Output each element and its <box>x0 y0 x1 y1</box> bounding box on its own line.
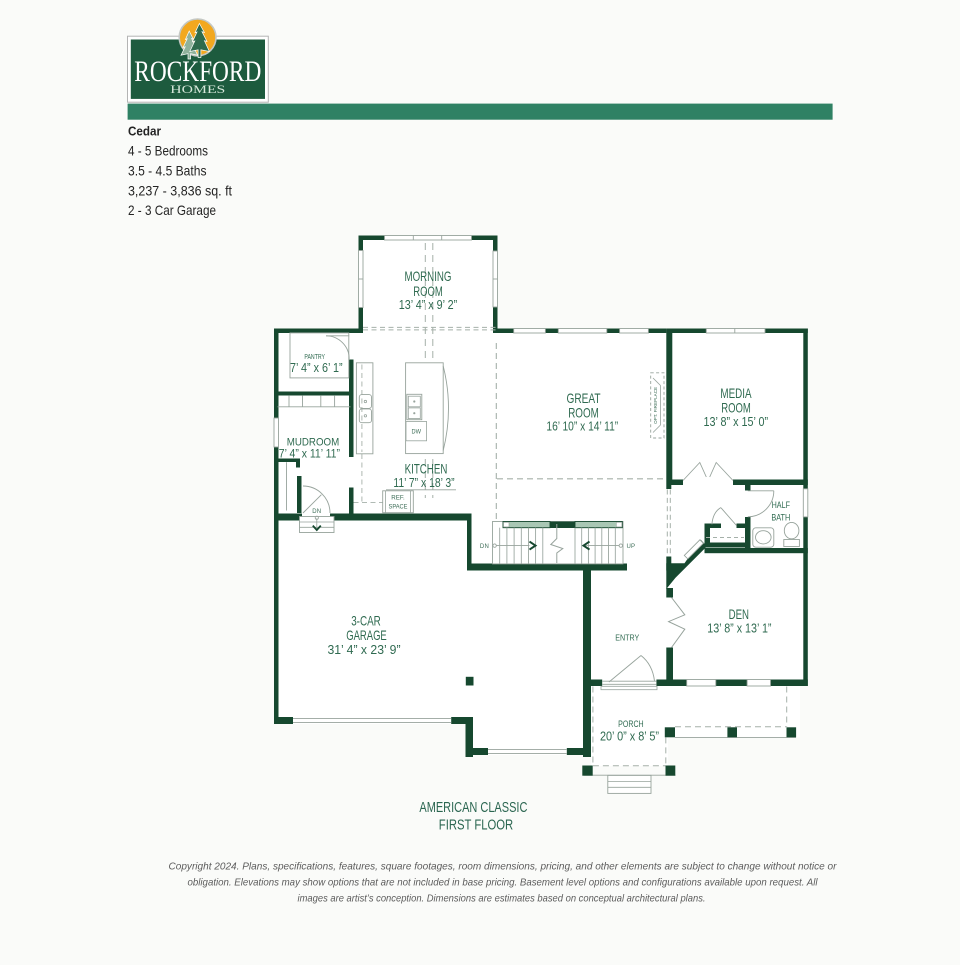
svg-text:GARAGE: GARAGE <box>346 628 387 643</box>
svg-text:PANTRY: PANTRY <box>304 352 325 361</box>
svg-text:11’ 7” x 18’ 3”: 11’ 7” x 18’ 3” <box>393 475 454 490</box>
svg-text:GREAT: GREAT <box>567 391 601 406</box>
svg-text:4 - 5 Bedrooms: 4 - 5 Bedrooms <box>128 143 208 158</box>
svg-text:DW: DW <box>412 428 422 435</box>
svg-text:obligation. Elevations may sho: obligation. Elevations may show options … <box>188 878 819 889</box>
svg-text:DEN: DEN <box>729 607 749 622</box>
svg-text:DN: DN <box>312 509 321 515</box>
svg-text:images are artist’s conception: images are artist’s conception. Dimensio… <box>298 893 706 904</box>
svg-text:3,237 - 3,836 sq. ft: 3,237 - 3,836 sq. ft <box>128 183 232 198</box>
svg-text:PORCH: PORCH <box>618 719 644 729</box>
svg-text:2 - 3 Car Garage: 2 - 3 Car Garage <box>128 203 216 218</box>
svg-text:HOMES: HOMES <box>170 82 225 96</box>
svg-text:UP: UP <box>627 544 636 550</box>
svg-text:BATH: BATH <box>771 513 790 523</box>
svg-text:OPT. FIREPLACE: OPT. FIREPLACE <box>653 387 658 424</box>
svg-text:3.5 - 4.5 Baths: 3.5 - 4.5 Baths <box>128 163 207 178</box>
svg-text:13’ 8” x 15’ 0”: 13’ 8” x 15’ 0” <box>704 414 769 429</box>
svg-text:MORNING: MORNING <box>405 269 452 284</box>
svg-text:ENTRY: ENTRY <box>615 634 640 643</box>
svg-text:FIRST FLOOR: FIRST FLOOR <box>439 817 513 833</box>
svg-text:16’ 10” x 14’ 11”: 16’ 10” x 14’ 11” <box>546 418 618 433</box>
svg-text:Cedar: Cedar <box>128 124 161 139</box>
svg-text:REF.: REF. <box>391 494 405 501</box>
svg-text:3-CAR: 3-CAR <box>351 613 381 628</box>
svg-text:13’ 8” x 13’ 1”: 13’ 8” x 13’ 1” <box>707 621 771 636</box>
svg-text:SPACE: SPACE <box>389 504 408 511</box>
svg-text:7’ 4” x 11’ 11”: 7’ 4” x 11’ 11” <box>279 448 340 460</box>
svg-text:20’ 0” x 8’ 5”: 20’ 0” x 8’ 5” <box>600 730 659 744</box>
svg-text:MUDROOM: MUDROOM <box>287 436 340 448</box>
svg-text:DN: DN <box>480 544 489 550</box>
svg-text:13’ 4” x 9’ 2”: 13’ 4” x 9’ 2” <box>399 297 457 312</box>
svg-text:MEDIA: MEDIA <box>720 386 752 401</box>
svg-text:AMERICAN CLASSIC: AMERICAN CLASSIC <box>419 800 527 816</box>
svg-text:Copyright 2024. Plans, specifi: Copyright 2024. Plans, specifications, f… <box>169 862 838 873</box>
svg-text:7’ 4” x 6’ 1”: 7’ 4” x 6’ 1” <box>290 361 343 375</box>
svg-text:HALF: HALF <box>772 500 791 510</box>
svg-text:31’ 4” x 23’ 9”: 31’ 4” x 23’ 9” <box>327 642 400 657</box>
